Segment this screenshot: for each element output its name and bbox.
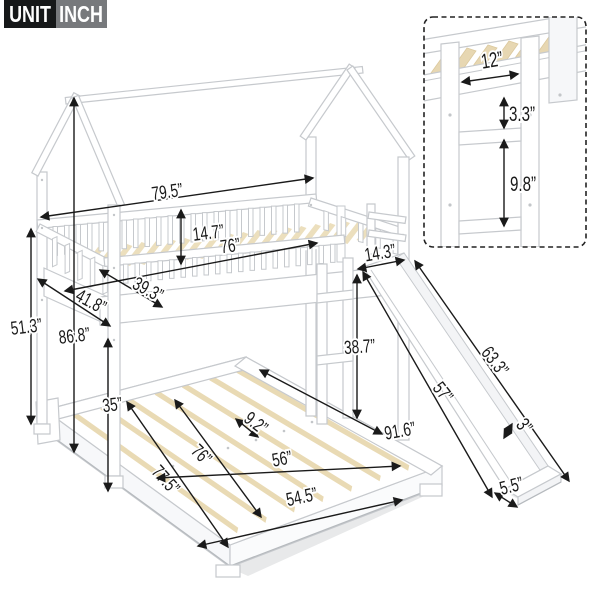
svg-text:9.8”: 9.8” <box>510 171 536 195</box>
svg-text:56”: 56” <box>270 446 293 471</box>
svg-text:14.7”: 14.7” <box>191 220 225 245</box>
svg-text:12”: 12” <box>479 46 504 73</box>
svg-text:UNIT: UNIT <box>9 2 51 28</box>
svg-text:51.3”: 51.3” <box>9 314 43 339</box>
svg-text:INCH: INCH <box>59 2 103 28</box>
svg-text:3.3”: 3.3” <box>509 101 535 125</box>
svg-text:79.5”: 79.5” <box>150 179 184 205</box>
svg-text:35”: 35” <box>101 393 123 417</box>
svg-text:86.8”: 86.8” <box>57 323 91 348</box>
svg-text:38.7”: 38.7” <box>343 335 376 359</box>
